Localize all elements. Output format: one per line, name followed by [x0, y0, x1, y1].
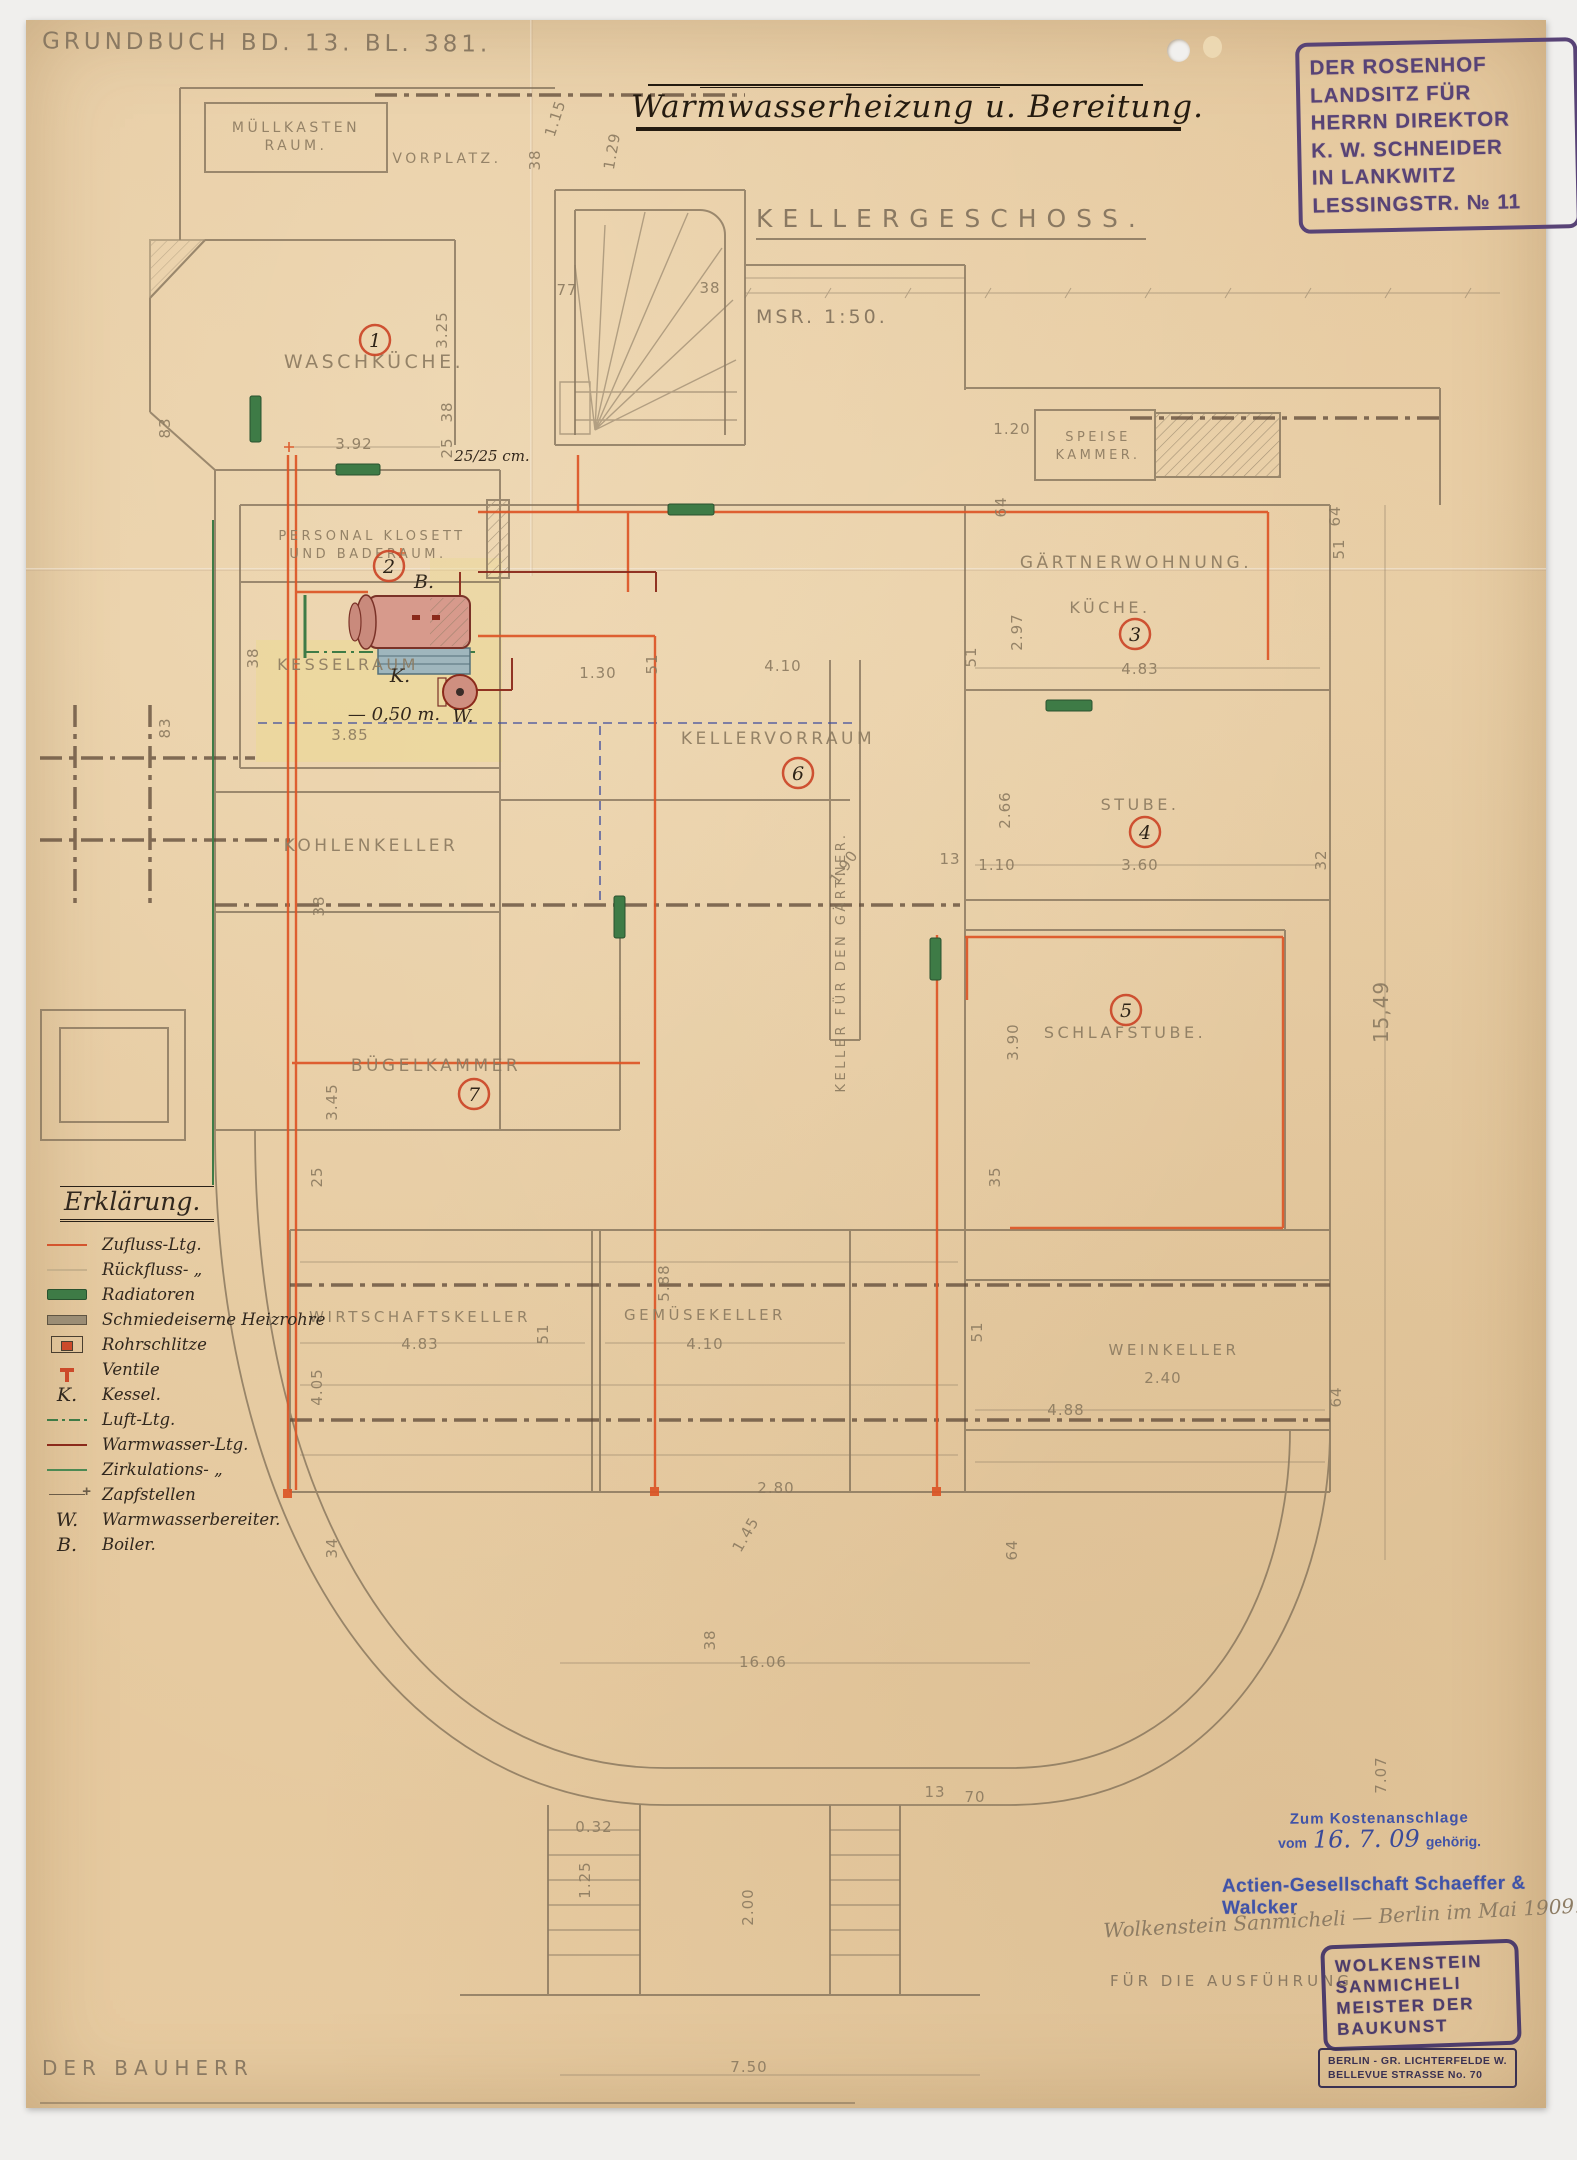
dimension-label: 51: [643, 653, 661, 674]
room-number-marker: 7: [459, 1079, 489, 1109]
legend-label: Schmiedeiserne Heizrohre: [102, 1310, 325, 1329]
dimension-label: 64: [992, 496, 1010, 517]
sheet-title: Warmwasserheizung u. Bereitung.: [630, 88, 1205, 127]
legend-entry: Zirkulations- „: [44, 1457, 324, 1482]
legend-entry: Zapfstellen: [44, 1482, 324, 1507]
room-number-marker: 3: [1120, 619, 1150, 649]
valve-symbol: [44, 1368, 90, 1372]
ink-annotation: W.: [452, 706, 473, 727]
room-label: Gärtnerwohnung.: [1020, 552, 1252, 573]
legend-label: Warmwasserbereiter.: [102, 1510, 280, 1529]
dimension-label: 25: [438, 437, 456, 458]
cost-estimate-line: vom 16. 7. 09 gehörig.: [1278, 1828, 1481, 1851]
legend-label: Rückfluss- „: [102, 1260, 202, 1279]
iron-symbol: [44, 1315, 90, 1325]
dimension-label: 2.80: [757, 1479, 794, 1497]
room-label: Waschküche.: [284, 350, 464, 373]
legend-label: Boiler.: [102, 1535, 156, 1554]
tap-symbol: [44, 1494, 90, 1495]
room-number: 2: [382, 556, 395, 578]
plan-labels: MüllkastenRaum.Vorplatz.Waschküche.Perso…: [156, 98, 1393, 2076]
dimension-label: 38: [310, 895, 328, 916]
room-label: Weinkeller: [1109, 1341, 1240, 1359]
legend-entry: Warmwasser-Ltg.: [44, 1432, 324, 1457]
dimension-label: 1.10: [978, 856, 1015, 874]
dimension-label: 3.25: [433, 311, 451, 348]
legend-entries: Zufluss-Ltg.Rückfluss- „RadiatorenSchmie…: [44, 1232, 324, 1557]
scan-background: MüllkastenRaum.Vorplatz.Waschküche.Perso…: [0, 0, 1577, 2160]
legend-title: Erklärung.: [60, 1186, 214, 1222]
execution-note: Für die Ausführung: [1110, 1972, 1353, 1990]
legend-entry: K.Kessel.: [44, 1382, 324, 1407]
legend-entry: Rohrschlitze: [44, 1332, 324, 1357]
dimension-label: 5.88: [655, 1264, 673, 1301]
dimension-label: 1.25: [576, 1861, 594, 1898]
room-label: Vorplatz.: [392, 151, 501, 167]
legend-entry: Radiatoren: [44, 1282, 324, 1307]
dimension-label: 4.88: [1047, 1401, 1084, 1419]
dimension-label: 3.45: [323, 1083, 341, 1120]
dimension-label: 25: [308, 1166, 326, 1187]
dimension-label: 1.15: [541, 98, 570, 139]
legend-entry: Ventile: [44, 1357, 324, 1382]
room-label: Kammer.: [1055, 448, 1140, 463]
dimension-label: 2.00: [739, 1888, 757, 1925]
room-label: Küche.: [1069, 598, 1150, 617]
address-stamp: BERLIN - GR. LICHTERFELDE W. BELLEVUE ST…: [1318, 2048, 1517, 2088]
dimension-label: 2.40: [1144, 1369, 1181, 1387]
scale-label: Msr. 1:50.: [756, 306, 888, 328]
dimension-label: 38: [244, 647, 262, 668]
dimension-label: 2.66: [996, 791, 1014, 828]
legend-label: Ventile: [102, 1360, 160, 1379]
title-block: Warmwasserheizung u. Bereitung.: [630, 84, 1205, 131]
dimension-label: 7.07: [1372, 1756, 1390, 1793]
room-number-marker: 4: [1130, 817, 1160, 847]
cost-estimate-vom: vom: [1278, 1835, 1307, 1851]
room-label: Raum.: [264, 138, 327, 154]
room-number-marker: 2: [374, 551, 404, 581]
dimension-label: 1.20: [993, 420, 1030, 438]
dimension-label: 0.32: [575, 1818, 612, 1836]
air-swatch: [47, 1419, 87, 1421]
dimension-label: 35: [986, 1166, 1004, 1187]
dimension-label: 1.30: [579, 664, 616, 682]
cost-estimate-stamp: Zum Kostenanschlage vom 16. 7. 09 gehöri…: [1278, 1809, 1481, 1851]
dimension-label: 34: [323, 1537, 341, 1558]
room-number: 6: [792, 763, 804, 785]
slot-symbol: [44, 1336, 90, 1353]
return-symbol: [44, 1269, 90, 1271]
iron-swatch: [47, 1315, 87, 1325]
valve-swatch: [60, 1368, 74, 1372]
ink-annotation: — 0,50 m.: [348, 704, 440, 725]
room-label: Gemüsekeller: [624, 1305, 786, 1324]
room-label: Kohlenkeller: [284, 836, 459, 856]
dimension-label: 3.60: [1121, 856, 1158, 874]
dimension-label: 83: [156, 417, 174, 438]
hot-symbol: [44, 1444, 90, 1446]
floor-label: Kellergeschoss.: [756, 204, 1146, 240]
grundbuch-note: Grundbuch Bd. 13. Bl. 381.: [42, 28, 491, 57]
dimension-label: 51: [534, 1323, 552, 1344]
room-label: Stube.: [1101, 795, 1180, 814]
dimension-label: 77: [556, 281, 577, 299]
master-builder-stamp: WOLKENSTEIN SANMICHELI MEISTER DER BAUKU…: [1320, 1939, 1522, 2052]
room-number-marker: 1: [360, 325, 390, 355]
legend-label: Rohrschlitze: [102, 1335, 207, 1354]
address-stamp-line: BELLEVUE STRASSE No. 70: [1328, 2068, 1507, 2082]
room-label: Bügelkammer: [351, 1054, 521, 1076]
dimension-label: 3.85: [331, 726, 368, 744]
ink-annotation: B.: [413, 571, 434, 593]
radiator-symbol: [44, 1289, 90, 1300]
tap-swatch: [49, 1494, 85, 1495]
radiator-swatch: [47, 1289, 87, 1300]
dimension-label: 4.10: [764, 657, 801, 675]
room-label: Personal Klosett: [278, 529, 465, 544]
dimension-label: 38: [701, 1629, 719, 1650]
legend: Erklärung. Zufluss-Ltg.Rückfluss- „Radia…: [44, 1186, 324, 1557]
owner-stamp: DER ROSENHOF LANDSITZ FÜR HERRN DIREKTOR…: [1295, 37, 1577, 234]
room-number: 3: [1129, 624, 1141, 646]
dimension-label: 38: [438, 401, 456, 422]
room-label: Speise: [1065, 430, 1131, 445]
letter-symbol: K.: [44, 1384, 90, 1406]
green-pipes-radiators: [213, 396, 1092, 1185]
dimension-label: 3.92: [335, 435, 372, 453]
room-number-marker: 5: [1111, 995, 1141, 1025]
legend-entry: Rückfluss- „: [44, 1257, 324, 1282]
cost-estimate-gehoerig: gehörig.: [1426, 1833, 1481, 1849]
hot-swatch: [47, 1444, 87, 1446]
dimension-label: 2.97: [1008, 613, 1026, 650]
dimension-label: 64: [1003, 1539, 1021, 1560]
legend-label: Zirkulations- „: [102, 1460, 223, 1479]
slot-swatch: [51, 1336, 83, 1353]
room-label: und Baderaum.: [289, 547, 446, 562]
legend-entry: Zufluss-Ltg.: [44, 1232, 324, 1257]
supply-symbol: [44, 1244, 90, 1246]
dimension-label: 38: [526, 149, 544, 170]
circ-swatch: [47, 1469, 87, 1471]
legend-entry: B.Boiler.: [44, 1532, 324, 1557]
ink-annotation: 25/25 cm.: [453, 447, 529, 465]
dimension-label: 16.06: [739, 1653, 787, 1671]
room-label: Müllkasten: [232, 118, 360, 136]
letter-symbol: W.: [44, 1509, 90, 1531]
dimension-label: 13: [939, 850, 960, 868]
legend-label: Luft-Ltg.: [102, 1410, 175, 1429]
dimension-label: 3.90: [1004, 1023, 1022, 1060]
dimension-label: 1.90: [826, 847, 862, 888]
dimension-label: 51: [1330, 538, 1348, 559]
legend-entry: Schmiedeiserne Heizrohre: [44, 1307, 324, 1332]
legend-label: Zapfstellen: [102, 1485, 196, 1504]
room-number-marker: 6: [783, 758, 813, 788]
owner-stamp-line: LESSINGSTR. № 11: [1312, 187, 1567, 220]
dimension-label: 1.45: [729, 1514, 763, 1555]
ink-annotation: K.: [389, 665, 410, 687]
dimension-label: 70: [964, 1788, 985, 1806]
dimension-label: 38: [699, 279, 720, 297]
address-stamp-line: BERLIN - GR. LICHTERFELDE W.: [1328, 2054, 1507, 2068]
dimension-label: 51: [968, 1321, 986, 1342]
legend-label: Zufluss-Ltg.: [102, 1235, 202, 1254]
legend-label: Radiatoren: [102, 1285, 195, 1304]
legend-entry: W.Warmwasserbereiter.: [44, 1507, 324, 1532]
dimension-label: 4.83: [1121, 660, 1158, 678]
dimension-label: 83: [156, 717, 174, 738]
dimension-label: 13: [924, 1783, 945, 1801]
return-swatch: [47, 1269, 87, 1271]
circ-symbol: [44, 1469, 90, 1471]
room-number: 7: [468, 1084, 481, 1106]
title-rule: [636, 127, 1181, 131]
legend-label: Warmwasser-Ltg.: [102, 1435, 248, 1454]
room-number: 1: [369, 330, 381, 352]
dimension-label: 4.83: [401, 1335, 438, 1353]
legend-label: Kessel.: [102, 1385, 161, 1404]
dimension-label: 51: [962, 646, 980, 667]
air-symbol: [44, 1419, 90, 1421]
dimension-label: 64: [1326, 505, 1344, 526]
bauherr-signature-line: [40, 2102, 855, 2104]
pencil-walls: [41, 88, 1440, 1995]
title-rule: [648, 84, 1143, 86]
supply-swatch: [47, 1244, 87, 1246]
room-number: 4: [1138, 822, 1151, 844]
letter-symbol: B.: [44, 1534, 90, 1556]
room-label: Kellervorraum: [681, 729, 875, 749]
room-label: Wirtschaftskeller: [309, 1308, 531, 1326]
dimension-label: 64: [1327, 1386, 1345, 1407]
bauherr-label: Der Bauherr: [42, 2056, 254, 2080]
dimension-label: 4.10: [686, 1335, 723, 1353]
room-number: 5: [1120, 1000, 1132, 1022]
handwritten-date: 16. 7. 09: [1313, 1829, 1420, 1851]
master-stamp-line: BAUKUNST: [1337, 2013, 1508, 2040]
dimension-label: 1.29: [600, 131, 624, 171]
dimension-label: 15,49: [1369, 981, 1393, 1043]
dimension-label: 7.50: [730, 2058, 767, 2076]
dimension-label: 32: [1312, 849, 1330, 870]
legend-entry: Luft-Ltg.: [44, 1407, 324, 1432]
